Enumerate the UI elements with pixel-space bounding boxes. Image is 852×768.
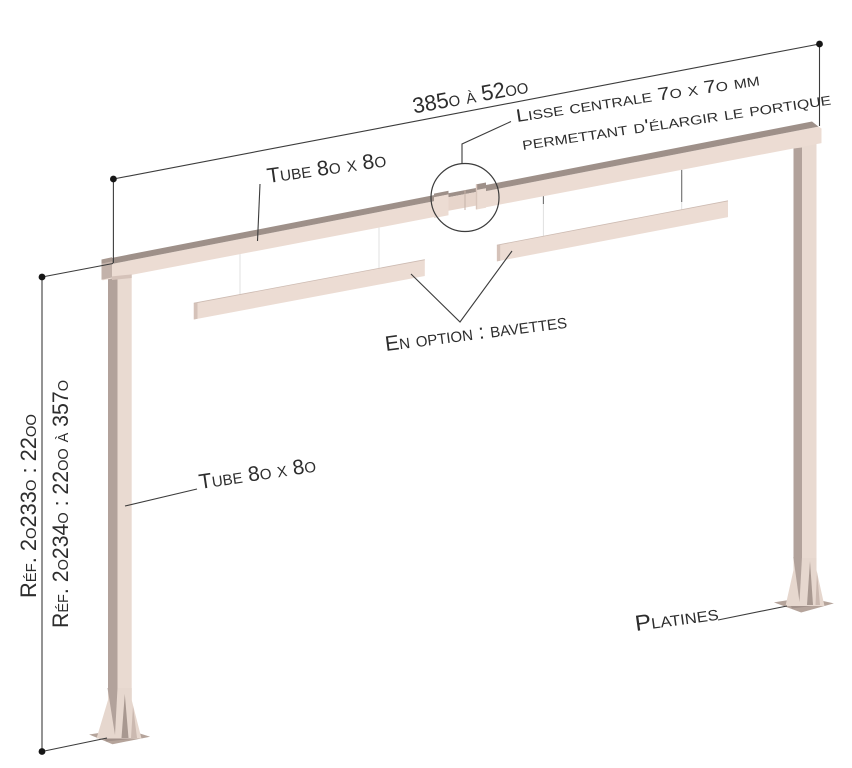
svg-text:Réf. 2o234o : 22oo à 357o: Réf. 2o234o : 22oo à 357o bbox=[48, 380, 73, 628]
svg-text:Réf. 2o233o : 22oo: Réf. 2o233o : 22oo bbox=[16, 414, 41, 598]
